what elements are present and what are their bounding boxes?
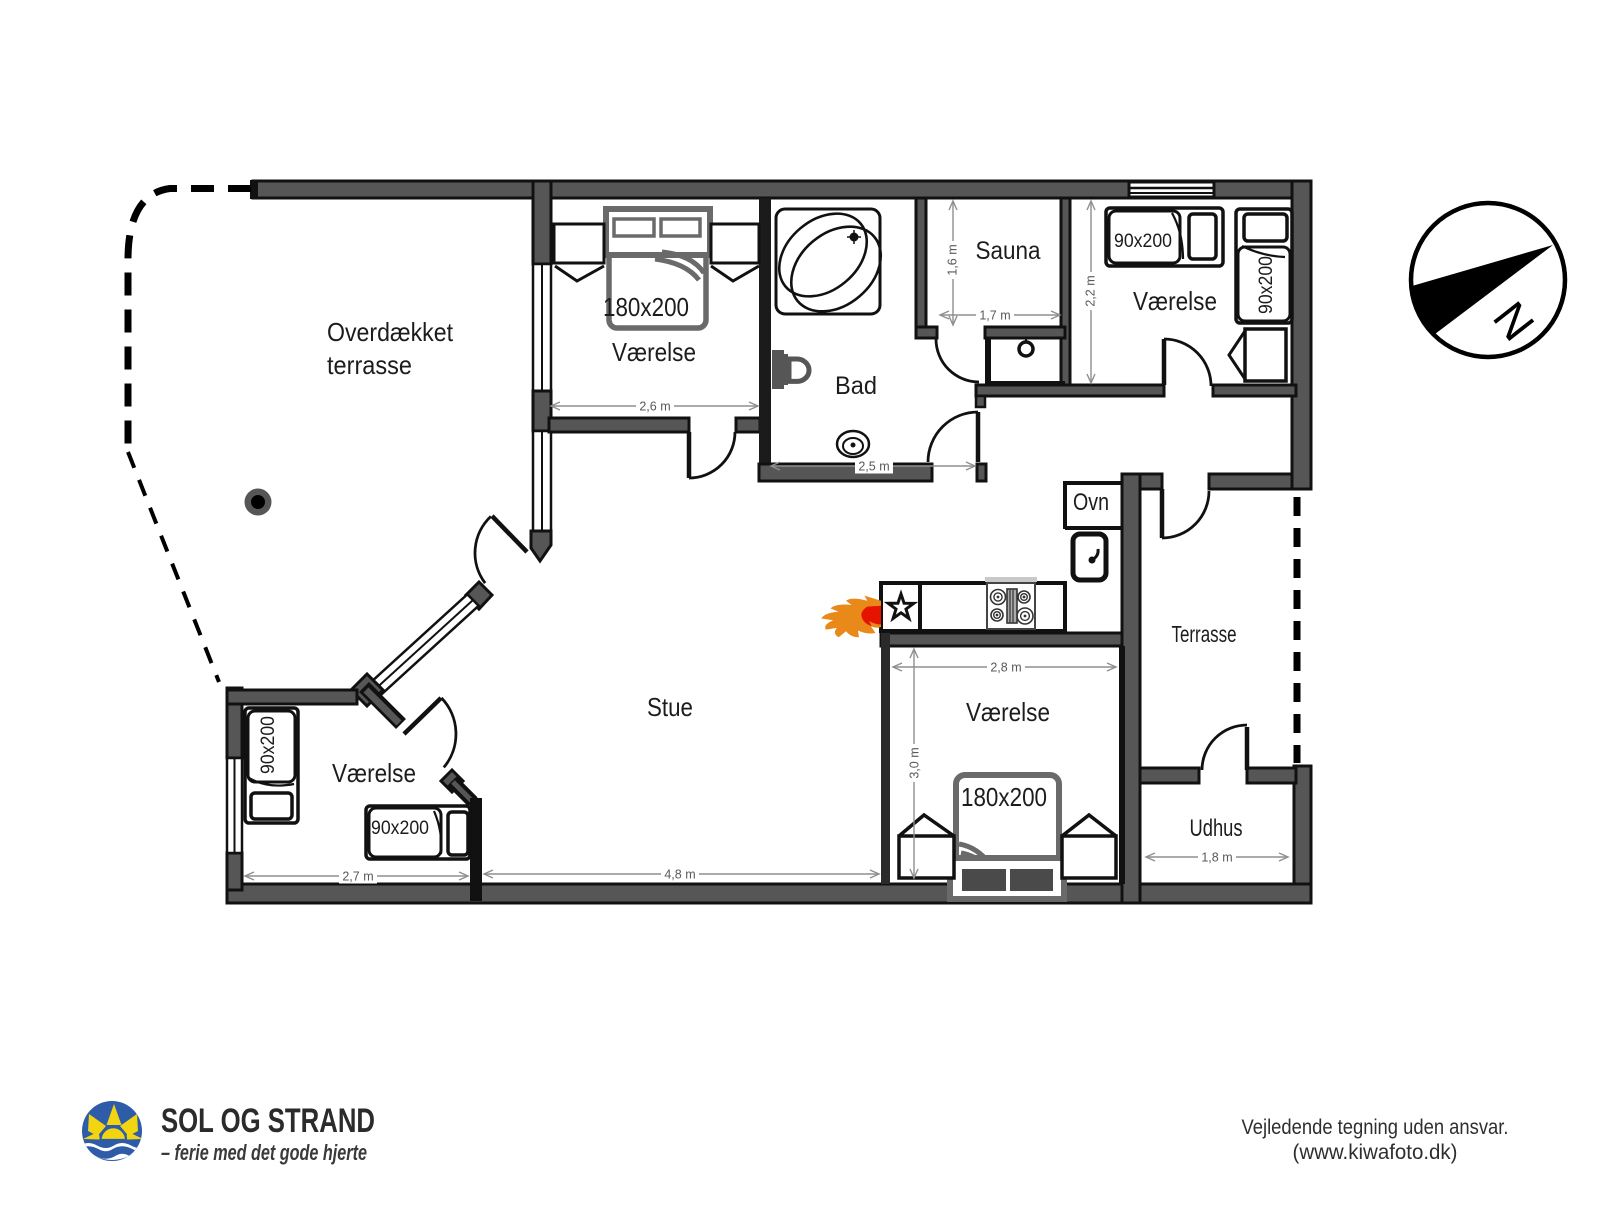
svg-text:4,8 m: 4,8 m bbox=[664, 868, 695, 882]
svg-text:2,8 m: 2,8 m bbox=[990, 661, 1021, 675]
svg-text:90x200: 90x200 bbox=[1255, 256, 1277, 314]
svg-text:Sauna: Sauna bbox=[976, 237, 1041, 265]
svg-text:2,5 m: 2,5 m bbox=[858, 460, 889, 474]
svg-text:1,7 m: 1,7 m bbox=[979, 309, 1010, 323]
svg-text:2,2 m: 2,2 m bbox=[1084, 275, 1098, 306]
svg-text:1,8 m: 1,8 m bbox=[1201, 851, 1232, 865]
svg-text:Terrasse: Terrasse bbox=[1172, 621, 1237, 647]
svg-text:2,6 m: 2,6 m bbox=[639, 400, 670, 414]
svg-text:Værelse: Værelse bbox=[332, 758, 416, 788]
svg-text:180x200: 180x200 bbox=[961, 782, 1047, 812]
svg-text:Vejledende tegning uden ansvar: Vejledende tegning uden ansvar. bbox=[1242, 1116, 1509, 1139]
svg-text:– ferie med det gode hjerte: – ferie med det gode hjerte bbox=[161, 1140, 367, 1165]
svg-text:terrasse: terrasse bbox=[327, 350, 412, 380]
svg-text:3,0 m: 3,0 m bbox=[908, 747, 922, 778]
svg-text:1,6 m: 1,6 m bbox=[946, 244, 960, 275]
svg-text:Overdækket: Overdækket bbox=[327, 317, 454, 347]
svg-text:Ovn: Ovn bbox=[1073, 489, 1109, 516]
svg-text:180x200: 180x200 bbox=[603, 292, 689, 322]
svg-text:90x200: 90x200 bbox=[1114, 230, 1172, 252]
svg-text:Værelse: Værelse bbox=[966, 697, 1050, 727]
svg-text:Værelse: Værelse bbox=[612, 337, 696, 367]
svg-text:2,7 m: 2,7 m bbox=[342, 870, 373, 884]
svg-text:Værelse: Værelse bbox=[1133, 286, 1217, 316]
svg-text:Udhus: Udhus bbox=[1190, 815, 1243, 842]
svg-text:SOL OG STRAND: SOL OG STRAND bbox=[161, 1102, 375, 1140]
svg-text:Bad: Bad bbox=[835, 372, 877, 400]
svg-text:90x200: 90x200 bbox=[371, 817, 429, 839]
svg-text:(www.kiwafoto.dk): (www.kiwafoto.dk) bbox=[1293, 1141, 1458, 1164]
svg-text:90x200: 90x200 bbox=[257, 716, 279, 774]
svg-text:Stue: Stue bbox=[647, 692, 693, 722]
